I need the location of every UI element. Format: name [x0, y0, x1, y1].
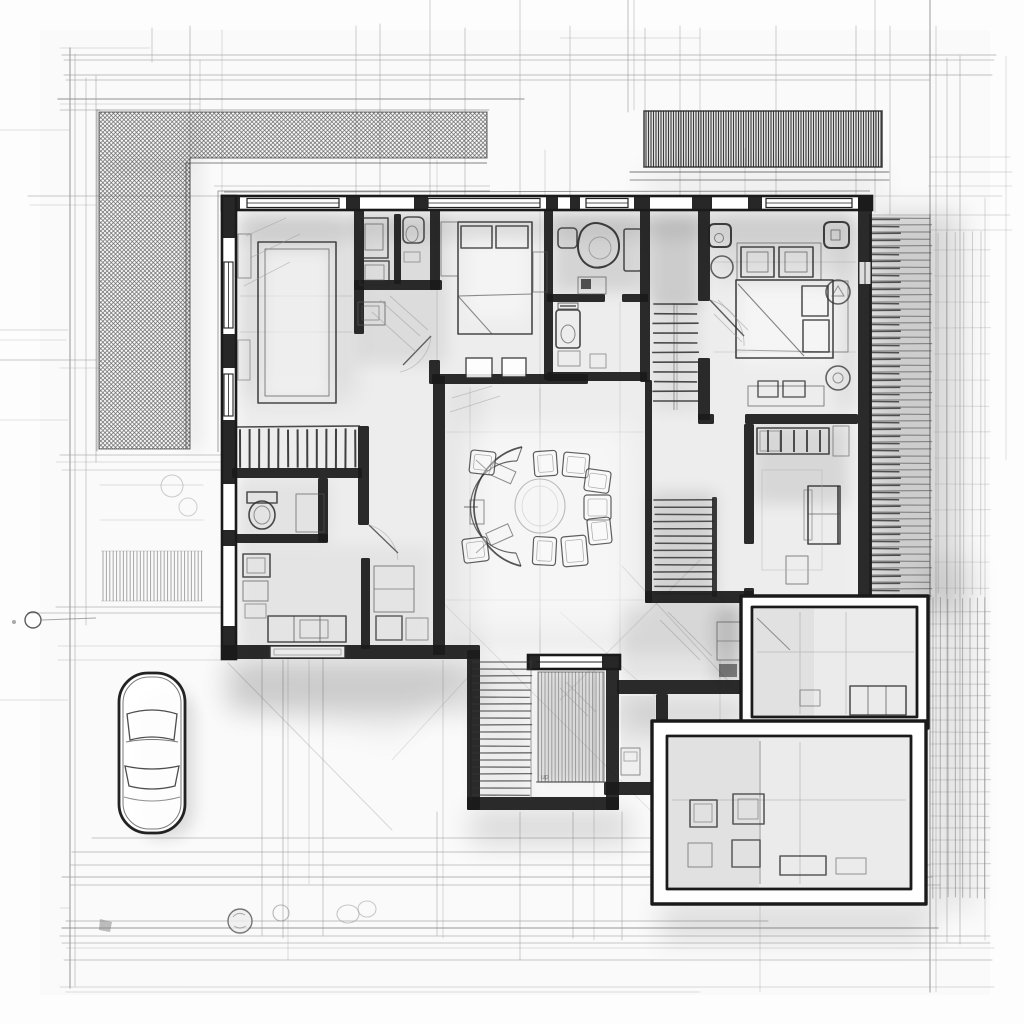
svg-text:up: up — [541, 774, 549, 781]
